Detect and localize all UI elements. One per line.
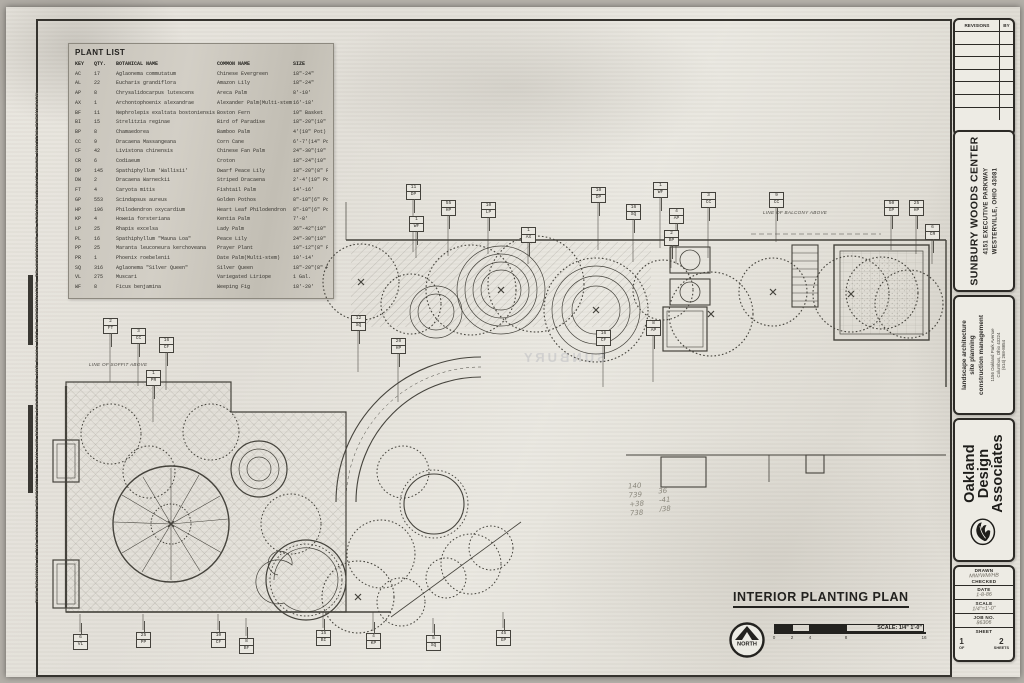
scale-ticks: 024816 (774, 634, 926, 642)
plant-key-tag-pp: 25PP (136, 632, 151, 648)
scale-segment (792, 624, 810, 632)
plant-key-tag-sq: 12SQ (351, 315, 366, 331)
plan-title: INTERIOR PLANTING PLAN (733, 590, 909, 608)
drawing-info-block: DRAWN MW/WM/HB CHECKED DATE 1-8-86 SCALE… (953, 565, 1015, 662)
plant-key-tag-ap: 8AP (646, 320, 661, 336)
sheet-number: 1 OF (959, 638, 964, 652)
plant-key-tag-wf: 1WF (653, 182, 668, 198)
plant-list-row: CC9Dracaena MassangeanaCorn Cane6'-7'(14… (75, 138, 328, 148)
plant-key-tag-cf: 16CF (596, 330, 611, 346)
sheet-total: 2 SHEETS (994, 638, 1009, 652)
project-block: SUNBURY WOODS CENTER 4151 EXECUTIVE PARK… (953, 130, 1015, 292)
scale-tick: 2 (791, 635, 794, 640)
pencil-note: 140739+38738 (628, 482, 645, 519)
scale-value: 1/4"=1'-0" (957, 605, 1011, 613)
plant-list-row: AL22Eucharis grandifloraAmazon Lily18"-2… (75, 79, 328, 89)
plant-key-tag-bi: 15BI (316, 630, 331, 646)
title-block-column: REVISIONS BY SUNBURY WOODS CENTER 4151 E… (951, 0, 1018, 683)
scale-tick: 0 (773, 635, 776, 640)
revisions-header: REVISIONS (955, 20, 1000, 31)
date-value: 1-8-86 (957, 591, 1011, 599)
plan-note: LINE OF SOFFIT ABOVE (89, 362, 147, 367)
north-arrow: NORTH (728, 621, 766, 659)
plant-list-row: BI15Strelitzia reginaeBird of Paradise18… (75, 118, 328, 128)
scale-segment (810, 624, 846, 632)
scale-segment (774, 624, 792, 632)
project-address-line1: 4151 EXECUTIVE PARKWAY (984, 136, 990, 285)
scale-text: SCALE: 1/4" 1'-0" (877, 625, 922, 631)
plant-key-tag-ft: 2FT (103, 318, 118, 334)
revision-row-empty (955, 57, 1013, 70)
firm-services: landscape architecturesite planningconst… (961, 315, 986, 395)
plant-list-row: AX1Archontophoenix alexandraeAlexander P… (75, 99, 328, 109)
revision-row-empty (955, 32, 1013, 45)
plant-list-row: AP8Chrysalidocarpus lutescensAreca Palm8… (75, 89, 328, 99)
plant-key-tag-pr: 1PR (146, 370, 161, 386)
plant-key-tag-sq: 16SQ (626, 204, 641, 220)
plant-key-tag-cc: 9CC (769, 192, 784, 208)
plant-list-row: BF11Nephrolepis exaltata bostoniensisBos… (75, 109, 328, 119)
plant-list-row: CF42Livistona chinensisChinese Fan Palm2… (75, 147, 328, 157)
margin-copyright-note: THIS DRAWING IS THE EXCLUSIVE PROPERTY O… (30, 127, 44, 567)
plant-key-tag-hp: 55HP (441, 200, 456, 216)
firm-name: OaklandDesignAssociates (963, 434, 1005, 513)
revisions-by-header: BY (1000, 23, 1013, 28)
revision-row-empty (955, 108, 1013, 121)
revision-row-empty (955, 82, 1013, 95)
checked-label: CHECKED (957, 579, 1011, 584)
plant-key-tag-kp: 4KP (366, 633, 381, 649)
scale-tick: 16 (921, 635, 926, 640)
plant-key-tag-dp: 10DP (591, 187, 606, 203)
plant-key-tag-ax: 1AX (521, 227, 536, 243)
firm-address: 1156 Oakland Park AvenueColumbus, Ohio 4… (990, 315, 1007, 395)
plant-key-tag-hp: 20HP (391, 338, 406, 354)
job-number-value: 86306 (957, 619, 1011, 627)
firm-logo-icon (969, 518, 1002, 546)
plant-key-tag-gp: 50GP (884, 200, 899, 216)
bleedthrough-ghost-text: SUNBURY (521, 350, 606, 365)
plant-key-tag-cr: 6CR (925, 224, 940, 240)
plant-key-tag-ap: 4AP (669, 208, 684, 224)
plant-key-tag-cc: 3CC (131, 328, 146, 344)
plant-key-tag-bf: 8BF (239, 638, 254, 654)
sheet-label: SHEET (957, 629, 1011, 634)
margin-note-text: THIS DRAWING IS THE EXCLUSIVE PROPERTY O… (35, 91, 40, 602)
north-label: NORTH (737, 642, 757, 648)
pencil-note: 36-41/38 (658, 487, 671, 515)
plant-key-tag-gp: 45GP (496, 630, 511, 646)
plant-list-row: BP8ChamaedoreaBamboo Palm4'(10" Pot) (75, 128, 328, 138)
plant-key-tag-dp: 11DP (406, 184, 421, 200)
plant-list-row: CR6CodiaeumCroton18"-24"(10" Pot) (75, 157, 328, 167)
plant-key-tag-cf: 10CF (211, 632, 226, 648)
revision-row-empty (955, 70, 1013, 83)
graphic-scale-bar: SCALE: 1/4" 1'-0" 024816 (774, 624, 926, 650)
plant-key-tag-bp: 2BP (664, 230, 679, 246)
plant-list-row: AC17Aglaonema commutatumChinese Evergree… (75, 70, 328, 80)
firm-block: OaklandDesignAssociates (953, 418, 1015, 562)
scale-tick: 8 (845, 635, 848, 640)
plant-key-tag-cc: 3CC (701, 192, 716, 208)
plant-key-tag-sq: 5SQ (426, 635, 441, 651)
project-address-line2: WESTERVILLE, OHIO 43081 (993, 136, 999, 285)
plant-key-tag-cf: 16CF (159, 337, 174, 353)
plant-list-header-row: KEYQTY.BOTANICAL NAMECOMMON NAMESIZE (75, 60, 328, 70)
scale-tick: 4 (809, 635, 812, 640)
services-block: landscape architecturesite planningconst… (953, 295, 1015, 415)
scanned-drawing-page: THIS DRAWING IS THE EXCLUSIVE PROPERTY O… (0, 0, 1024, 683)
plant-key-tag-lp: 10LP (481, 202, 496, 218)
plant-key-tag-hp: 25HP (909, 200, 924, 216)
revision-row-empty (955, 45, 1013, 58)
plant-list-title: PLANT LIST (75, 48, 328, 57)
revision-row-empty (955, 95, 1013, 108)
plan-note: LINE OF BALCONY ABOVE (763, 210, 827, 215)
revisions-block: REVISIONS BY (953, 18, 1015, 136)
paper-sheet: THIS DRAWING IS THE EXCLUSIVE PROPERTY O… (6, 7, 1020, 677)
project-name: SUNBURY WOODS CENTER (969, 136, 981, 285)
plant-key-tag-vl: 6VL (73, 634, 88, 650)
plant-key-tag-wf: 1WF (409, 216, 424, 232)
